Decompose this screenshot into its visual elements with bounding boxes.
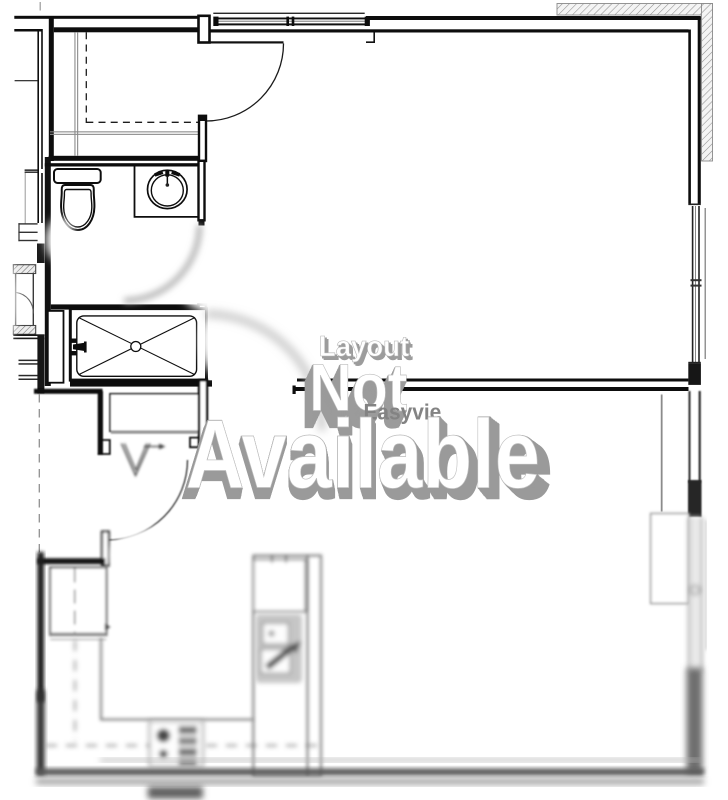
svg-text:Available: Available	[186, 401, 540, 510]
